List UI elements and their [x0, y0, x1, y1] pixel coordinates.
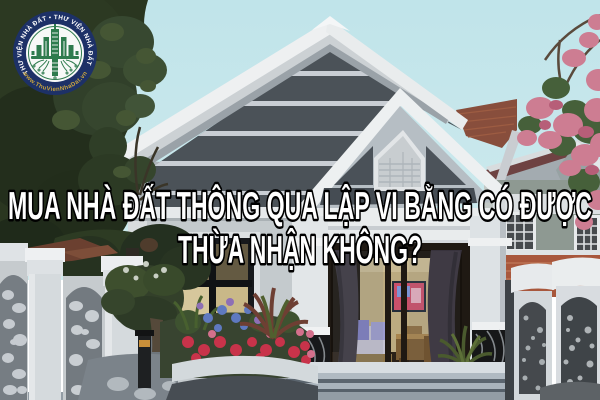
- svg-text:MUA NHÀ ĐẤT THÔNG QUA LẬP VI B: MUA NHÀ ĐẤT THÔNG QUA LẬP VI BẰNG CÓ ĐƯỢ…: [8, 183, 592, 228]
- svg-text:THỪA NHẬN KHÔNG?: THỪA NHẬN KHÔNG?: [178, 227, 422, 272]
